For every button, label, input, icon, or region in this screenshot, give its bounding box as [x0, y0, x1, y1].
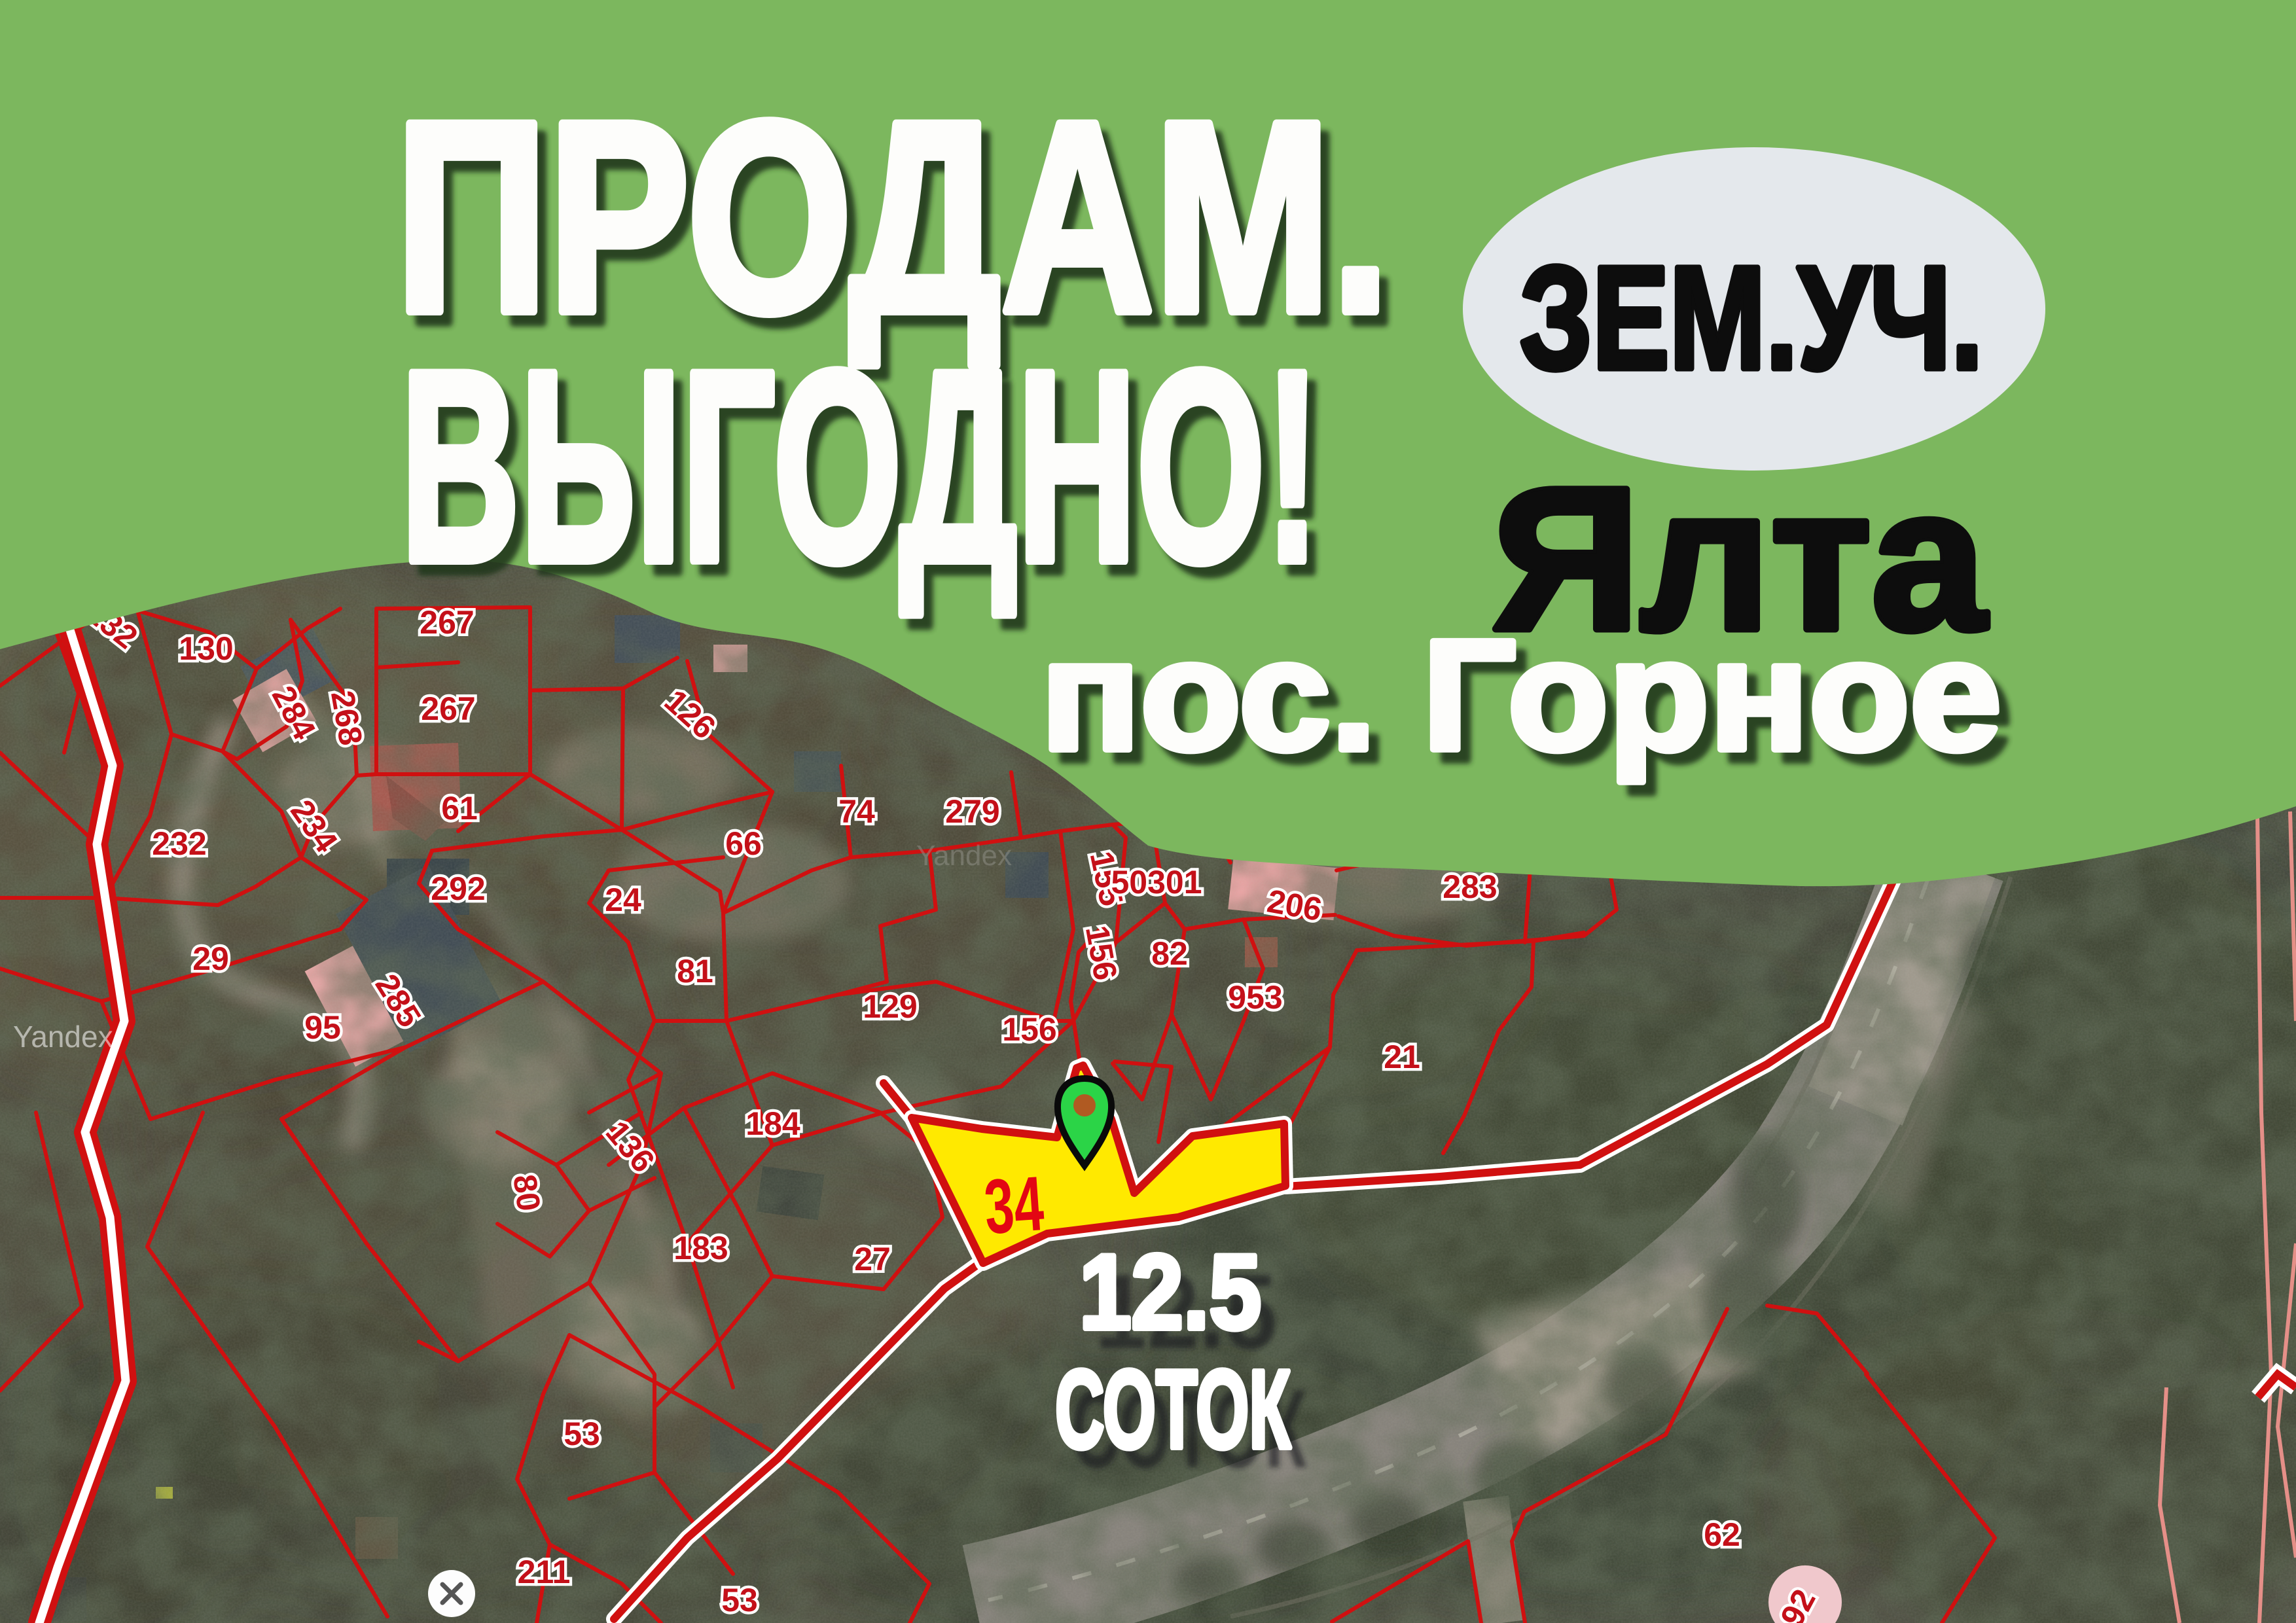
svg-text:66: 66 [725, 825, 762, 862]
svg-text:24: 24 [605, 882, 641, 918]
svg-text:74: 74 [838, 793, 875, 830]
svg-text:183: 183 [673, 1230, 728, 1266]
svg-text:ВЫГОДНО!: ВЫГОДНО! [401, 314, 1320, 618]
svg-text:Yandex: Yandex [13, 1020, 113, 1054]
svg-text:279: 279 [945, 793, 999, 830]
svg-text:27: 27 [854, 1241, 891, 1277]
svg-text:53: 53 [721, 1582, 758, 1618]
svg-text:34: 34 [982, 1160, 1047, 1251]
svg-text:953: 953 [1228, 979, 1282, 1016]
svg-text:12.5: 12.5 [1079, 1233, 1261, 1351]
svg-text:292: 292 [431, 870, 485, 907]
svg-text:Yandex: Yandex [916, 840, 1012, 872]
svg-text:232: 232 [152, 825, 206, 862]
svg-text:29: 29 [192, 940, 229, 977]
svg-text:156: 156 [1002, 1011, 1056, 1048]
svg-text:81: 81 [677, 953, 713, 990]
svg-text:пос. Горное: пос. Горное [1041, 607, 2001, 783]
svg-text:95: 95 [304, 1009, 341, 1046]
svg-text:211: 211 [518, 1554, 571, 1590]
svg-text:62: 62 [1704, 1516, 1740, 1553]
svg-text:129: 129 [863, 988, 917, 1025]
svg-text:283: 283 [1443, 868, 1497, 905]
svg-text:50301: 50301 [1111, 864, 1202, 901]
svg-text:61: 61 [441, 790, 478, 827]
svg-text:130: 130 [179, 630, 233, 667]
svg-text:267: 267 [421, 690, 475, 727]
svg-text:СОТОК: СОТОК [1055, 1347, 1291, 1472]
svg-text:53: 53 [564, 1416, 600, 1452]
svg-text:80: 80 [506, 1172, 547, 1213]
svg-text:21: 21 [1384, 1039, 1420, 1075]
svg-text:184: 184 [745, 1105, 800, 1142]
svg-text:ЗЕМ.УЧ.: ЗЕМ.УЧ. [1520, 236, 1983, 400]
svg-text:82: 82 [1151, 935, 1188, 972]
